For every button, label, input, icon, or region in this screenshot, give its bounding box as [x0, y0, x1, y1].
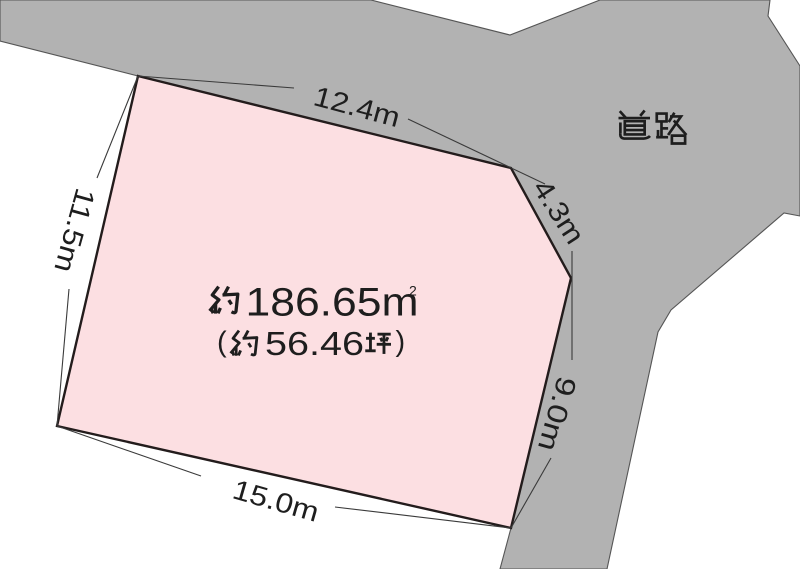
svg-text:(: (	[217, 327, 227, 359]
svg-text:56.46: 56.46	[265, 325, 364, 362]
svg-text:2: 2	[409, 283, 417, 299]
svg-text:186.65m: 186.65m	[246, 281, 419, 325]
svg-text:): )	[396, 326, 406, 358]
